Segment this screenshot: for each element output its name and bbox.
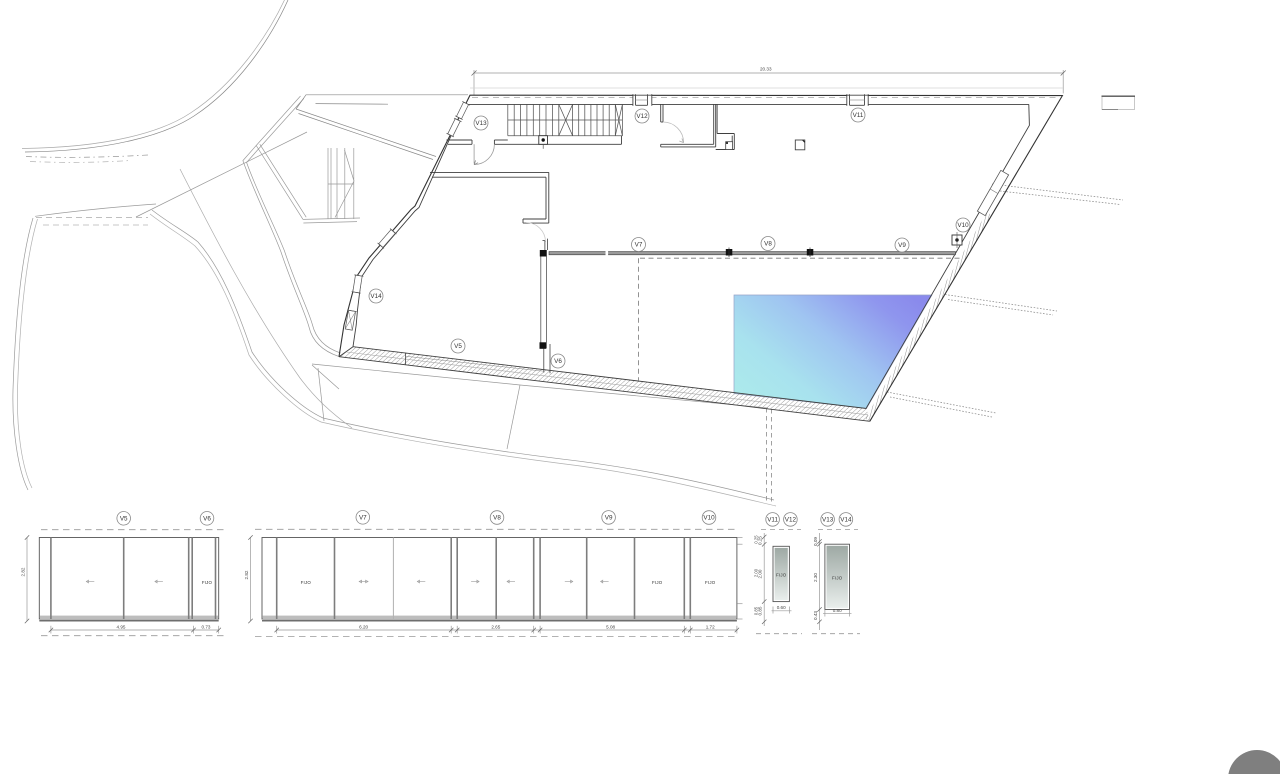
svg-text:V9: V9 xyxy=(605,515,613,522)
svg-text:V14: V14 xyxy=(840,517,852,524)
svg-text:V6: V6 xyxy=(203,516,211,523)
svg-text:V13: V13 xyxy=(822,517,834,524)
svg-text:2.82: 2.82 xyxy=(244,570,249,579)
svg-text:V10: V10 xyxy=(703,515,715,522)
svg-text:V10: V10 xyxy=(957,222,969,229)
svg-text:5.08: 5.08 xyxy=(606,624,615,629)
svg-text:V14: V14 xyxy=(370,293,382,300)
svg-text:6.20: 6.20 xyxy=(359,624,368,629)
svg-text:FIJO: FIJO xyxy=(652,580,663,585)
svg-text:V8: V8 xyxy=(764,241,772,248)
svg-text:V12: V12 xyxy=(636,113,648,120)
svg-text:FIJO: FIJO xyxy=(301,580,312,585)
svg-text:V13: V13 xyxy=(475,120,487,127)
svg-text:2.82: 2.82 xyxy=(21,567,26,576)
svg-text:20.33: 20.33 xyxy=(760,67,772,72)
svg-text:V7: V7 xyxy=(635,242,643,249)
svg-text:1.72: 1.72 xyxy=(706,624,715,629)
svg-text:V12: V12 xyxy=(785,517,797,524)
svg-text:2.65: 2.65 xyxy=(491,624,500,629)
svg-text:0.60: 0.60 xyxy=(777,605,786,610)
svg-text:0.25: 0.25 xyxy=(758,536,763,545)
svg-text:FIJO: FIJO xyxy=(202,580,213,585)
svg-text:0.73: 0.73 xyxy=(202,624,211,629)
svg-text:V8: V8 xyxy=(493,515,501,522)
svg-text:FIJO: FIJO xyxy=(705,580,716,585)
svg-text:FIJO: FIJO xyxy=(832,576,843,581)
svg-text:0.09: 0.09 xyxy=(813,537,818,546)
svg-text:V11: V11 xyxy=(853,112,864,119)
svg-text:V7: V7 xyxy=(359,515,367,522)
svg-text:FIJO: FIJO xyxy=(776,573,787,578)
svg-text:0.43: 0.43 xyxy=(813,611,818,620)
svg-text:0.80: 0.80 xyxy=(833,608,842,613)
svg-text:2.00: 2.00 xyxy=(758,569,763,578)
svg-text:V11: V11 xyxy=(767,517,778,524)
svg-text:V6: V6 xyxy=(554,358,562,365)
svg-text:2.30: 2.30 xyxy=(813,573,818,582)
svg-text:V5: V5 xyxy=(120,516,128,523)
svg-text:V5: V5 xyxy=(454,343,462,350)
svg-text:V9: V9 xyxy=(898,242,906,249)
svg-text:4.95: 4.95 xyxy=(117,624,126,629)
svg-text:0.85: 0.85 xyxy=(758,606,763,615)
